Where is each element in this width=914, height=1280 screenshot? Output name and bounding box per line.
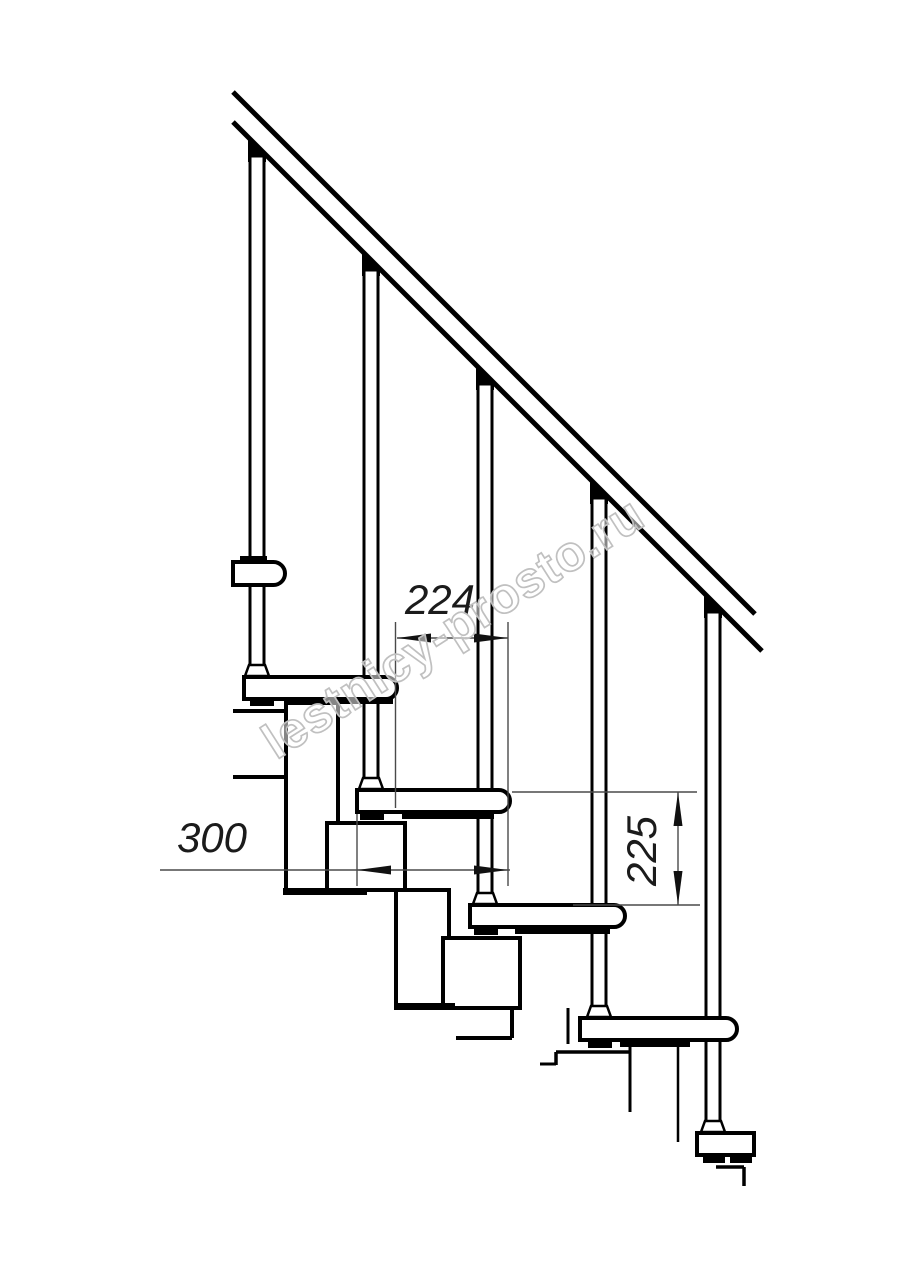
clamp-mark — [360, 814, 384, 820]
baluster-foot — [359, 778, 383, 789]
clamp-mark — [730, 1157, 752, 1163]
modular-staircase-diagram: 224 300 225 lestnicy-prosto.ru — [0, 0, 914, 1280]
clamp-mark — [240, 556, 267, 563]
dimension-arrow — [674, 792, 683, 826]
clamp-mark — [250, 699, 274, 706]
baluster-shaft — [250, 156, 264, 666]
baluster-foot — [473, 893, 497, 904]
baluster-foot — [245, 665, 269, 676]
clamp-mark — [620, 1042, 690, 1047]
clamp-mark — [515, 929, 610, 934]
dimension-arrow — [674, 871, 683, 905]
tread — [580, 1018, 737, 1040]
clamp-mark — [474, 929, 498, 935]
tread — [357, 790, 510, 812]
clamp-mark — [394, 1003, 455, 1010]
tread — [470, 905, 625, 927]
staircase-drawing-page: 224 300 225 lestnicy-prosto.ru — [0, 0, 914, 1280]
module-block — [443, 938, 520, 1008]
clamp-mark — [588, 1042, 612, 1048]
baluster-foot — [587, 1006, 611, 1017]
tread — [233, 562, 285, 585]
baluster-shaft — [706, 612, 720, 1122]
handrail-line — [233, 92, 755, 614]
clamp-mark — [703, 1157, 725, 1163]
clamp-mark — [402, 814, 494, 819]
dimension-label-riser: 225 — [618, 815, 665, 887]
clamp-mark — [283, 888, 367, 895]
module-block — [327, 823, 405, 890]
tread — [697, 1133, 754, 1155]
baluster-foot — [701, 1121, 725, 1132]
dimension-label-tread-depth: 300 — [177, 814, 248, 861]
